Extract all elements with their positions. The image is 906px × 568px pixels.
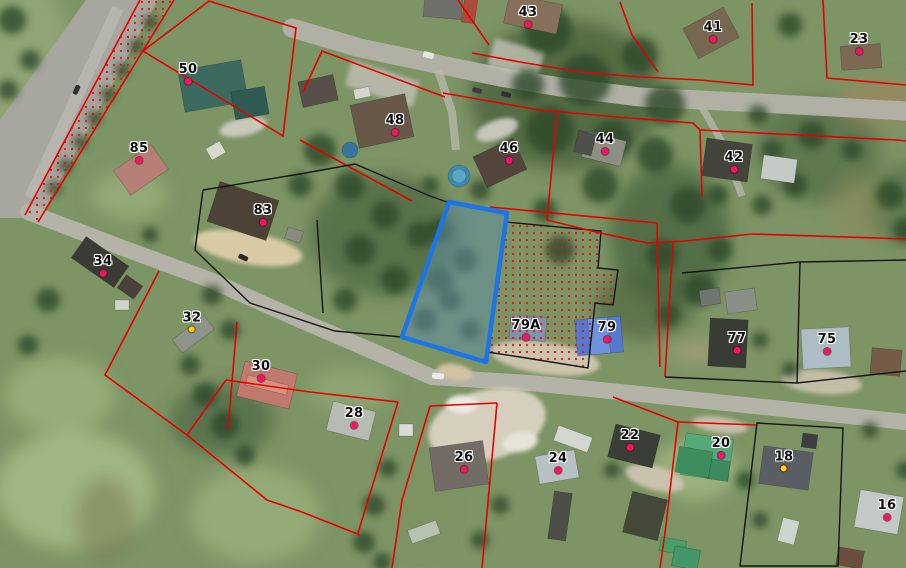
parcel-number: 24 — [549, 452, 568, 465]
parcel-marker-dot — [99, 270, 106, 277]
parcel-marker-dot — [603, 336, 610, 343]
parcel-number: 32 — [183, 311, 202, 324]
parcel-label-79A[interactable]: 79A — [511, 319, 540, 341]
parcel-marker-dot — [259, 219, 266, 226]
parcel-label-85[interactable]: 85 — [130, 142, 149, 164]
parcel-label-24[interactable]: 24 — [549, 452, 568, 474]
parcel-label-30[interactable]: 30 — [252, 360, 271, 382]
parcel-marker-dot — [626, 444, 633, 451]
parcel-marker-dot — [823, 348, 830, 355]
parcel-marker-dot — [505, 157, 512, 164]
parcel-marker-dot — [135, 157, 142, 164]
parcel-number: 44 — [596, 133, 615, 146]
parcel-label-48[interactable]: 48 — [386, 114, 405, 136]
parcel-marker-dot — [524, 21, 531, 28]
parcel-label-20[interactable]: 20 — [712, 437, 731, 459]
parcel-label-77[interactable]: 77 — [728, 332, 747, 354]
parcel-label-50[interactable]: 50 — [179, 63, 198, 85]
parcel-label-83[interactable]: 83 — [254, 204, 273, 226]
parcel-marker-dot — [601, 148, 608, 155]
parcel-number: 48 — [386, 114, 405, 127]
parcel-label-32[interactable]: 32 — [183, 311, 202, 332]
parcel-number: 43 — [519, 6, 538, 19]
parcel-number: 18 — [775, 450, 794, 463]
parcel-number: 41 — [704, 21, 723, 34]
parcel-label-26[interactable]: 26 — [455, 451, 474, 473]
parcel-marker-dot — [733, 347, 740, 354]
parcel-label-41[interactable]: 41 — [704, 21, 723, 43]
parcel-label-22[interactable]: 22 — [621, 429, 640, 451]
parcel-label-34[interactable]: 34 — [94, 255, 113, 277]
parcel-number: 79 — [598, 321, 617, 334]
parcel-number: 23 — [850, 33, 869, 46]
parcel-number: 22 — [621, 429, 640, 442]
parcel-number: 75 — [818, 333, 837, 346]
parcel-number: 30 — [252, 360, 271, 373]
parcel-number: 26 — [455, 451, 474, 464]
parcel-number: 79A — [511, 319, 540, 332]
parcel-label-18[interactable]: 18 — [775, 450, 794, 471]
parcel-label-16[interactable]: 16 — [878, 499, 897, 521]
parcel-number: 34 — [94, 255, 113, 268]
parcel-marker-dot — [717, 452, 724, 459]
parcel-marker-dot — [709, 36, 716, 43]
parcel-number: 20 — [712, 437, 731, 450]
parcel-number: 28 — [345, 407, 364, 420]
parcel-number: 16 — [878, 499, 897, 512]
parcel-number: 85 — [130, 142, 149, 155]
parcel-marker-dot — [460, 466, 467, 473]
parcel-marker-dot — [730, 166, 737, 173]
parcel-number: 42 — [725, 151, 744, 164]
parcel-marker-dot — [257, 375, 264, 382]
parcel-number: 77 — [728, 332, 747, 345]
parcel-label-23[interactable]: 23 — [850, 33, 869, 55]
parcel-label-75[interactable]: 75 — [818, 333, 837, 355]
parcel-label-28[interactable]: 28 — [345, 407, 364, 429]
parcel-marker-dot — [883, 514, 890, 521]
parcel-label-79[interactable]: 79 — [598, 321, 617, 343]
parcel-marker-dot — [554, 467, 561, 474]
parcel-label-43[interactable]: 43 — [519, 6, 538, 28]
parcel-marker-dot — [350, 422, 357, 429]
parcel-number: 83 — [254, 204, 273, 217]
parcel-marker-dot — [855, 48, 862, 55]
parcel-marker-dot — [391, 129, 398, 136]
parcel-number: 46 — [500, 142, 519, 155]
parcel-label-44[interactable]: 44 — [596, 133, 615, 155]
parcel-marker-dot — [184, 78, 191, 85]
parcel-marker-dot — [523, 334, 530, 341]
parcel-label-46[interactable]: 46 — [500, 142, 519, 164]
parcel-marker-dot — [781, 465, 787, 471]
satellite-layer — [0, 0, 906, 568]
parcel-marker-dot — [189, 326, 195, 332]
parcel-number: 50 — [179, 63, 198, 76]
parcel-label-42[interactable]: 42 — [725, 151, 744, 173]
map-canvas[interactable]: 508543412348464442833432302879A797775262… — [0, 0, 906, 568]
